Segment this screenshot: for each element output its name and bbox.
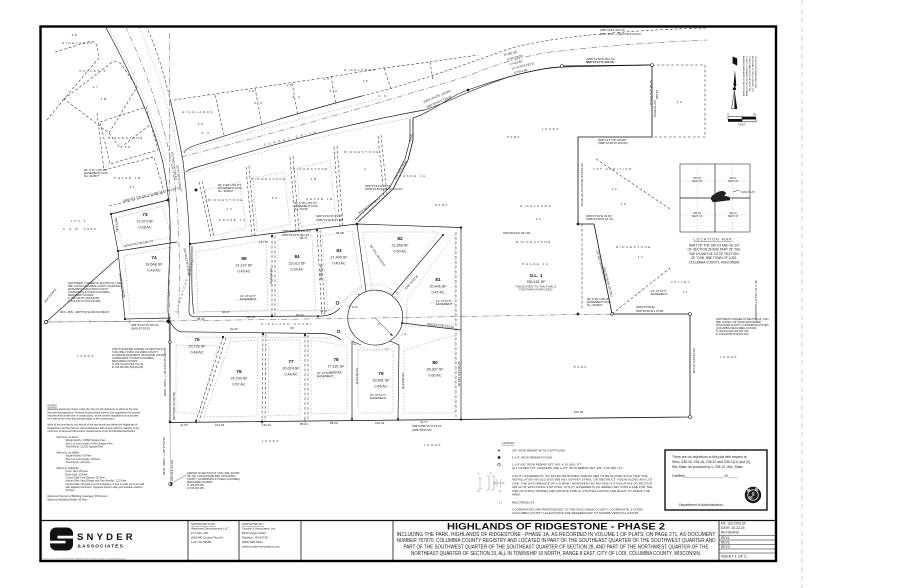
svg-text:REV3: REV3 — [721, 545, 730, 549]
svg-text:(S2°07'55"E): (S2°07'55"E) — [653, 100, 657, 117]
svg-text:SHEET 1 OF 2: SHEET 1 OF 2 — [721, 555, 746, 559]
svg-text:(N89°27'09"E): (N89°27'09"E) — [636, 305, 655, 309]
svg-text:Madison, WI 53718: Madison, WI 53718 — [242, 536, 268, 540]
svg-text:45.97: 45.97 — [320, 309, 328, 313]
svg-text:INCLUDING THE PARK, HIGHLANDS: INCLUDING THE PARK, HIGHLANDS OF RIDGEST… — [397, 532, 716, 538]
svg-text:&ASSOCIATES: &ASSOCIATES — [78, 544, 124, 550]
svg-text:HIGHLANDS: HIGHLANDS — [344, 68, 376, 72]
svg-text:W10440 County Road K: W10440 County Road K — [191, 536, 223, 540]
svg-text:41.97': 41.97' — [180, 423, 189, 427]
svg-text:NORTHEAST QUARTER OF SECTION 3: NORTHEAST QUARTER OF SECTION 33, ALL IN … — [411, 551, 701, 557]
svg-text:EASEMENT: EASEMENT — [651, 292, 668, 296]
svg-text:No. 953007: No. 953007 — [218, 189, 234, 193]
svg-text:There are no objections to thi: There are no objections to this plat wit… — [672, 455, 747, 459]
svg-text:Certified____________________,: Certified____________________, 20_____ — [672, 474, 738, 478]
svg-text:Lodi, WI 53555: Lodi, WI 53555 — [191, 540, 212, 544]
svg-text:minimum lot area and dimension: minimum lot area and dimension requireme… — [48, 429, 136, 433]
svg-text:PARK: PARK — [507, 135, 521, 139]
svg-text:COUNTY COORDINATE SYSTEM (COLU: COUNTY COORDINATE SYSTEM (COLUMBIA — [745, 56, 748, 97]
svg-text:0.60 AC: 0.60 AC — [428, 374, 441, 378]
svg-text:REV1: REV1 — [721, 536, 730, 540]
svg-text:EASEMENT: EASEMENT — [317, 374, 334, 378]
svg-text:RIDGESTONE: RIDGESTONE — [616, 245, 652, 249]
svg-text:13: 13 — [227, 207, 234, 211]
svg-text:COUNTY) NAD-83(2011), IN WHICH: COUNTY) NAD-83(2011), IN WHICH THE — [748, 56, 751, 92]
svg-text:0.6: 0.6 — [255, 101, 264, 105]
svg-text:2B: 2B — [311, 177, 318, 181]
svg-text:30' X 30' UTILITY EASEMENT: 30' X 30' UTILITY EASEMENT — [754, 280, 758, 321]
svg-text:83: 83 — [336, 248, 342, 253]
svg-text:No. 79736: No. 79736 — [294, 207, 308, 211]
svg-text:0.28 AC: 0.28 AC — [138, 226, 151, 230]
svg-text:LOT 1: LOT 1 — [71, 219, 87, 223]
svg-text:25: 25 — [287, 83, 294, 87]
svg-text:73: 73 — [142, 212, 148, 217]
svg-text:MON., MON., (N89°57'03"E 2966.: MON., MON., (N89°57'03"E 2966.06) 2966.0… — [60, 311, 110, 314]
svg-text:HIGHLANDS OF RIDGESTONE - PHAS: HIGHLANDS OF RIDGESTONE - PHASE 2 — [447, 521, 665, 532]
svg-text:82: 82 — [397, 236, 403, 241]
svg-text:DATE: 10-22-24: DATE: 10-22-24 — [721, 526, 745, 530]
svg-text:E: 518,033.833 (518,034.733): E: 518,033.833 (518,034.733) — [716, 333, 749, 336]
svg-text:RIDGESTONE: RIDGESTONE — [108, 136, 144, 140]
svg-text:FOR PARK PURPOSES": FOR PARK PURPOSES" — [519, 288, 553, 292]
svg-text:O.L. 1: O.L. 1 — [529, 273, 542, 278]
svg-text:161.18: 161.18 — [215, 423, 225, 427]
svg-text:MON., MON., + N88°12'48"E 204: MON., MON., + N88°12'48"E 2044.62' — [600, 33, 642, 36]
svg-text:20,446 SF: 20,446 SF — [429, 285, 447, 289]
svg-text:EASEMENT: EASEMENT — [436, 302, 453, 306]
svg-text:HIGHLANDS: HIGHLANDS — [62, 41, 94, 45]
svg-text:74.77: 74.77 — [420, 420, 428, 424]
svg-text:Two-Family: 110 Feet: Two-Family: 110 Feet — [66, 460, 91, 464]
svg-text:(COLUMBIA COUNTY) ELEVATIONS A: (COLUMBIA COUNTY) ELEVATIONS ARE REFEREN… — [512, 511, 639, 515]
svg-text:(N0°25'50"W 230.58): (N0°25'50"W 230.58) — [172, 392, 176, 420]
svg-text:SW 1/4: SW 1/4 — [693, 178, 701, 180]
svg-text:98.45: 98.45 — [197, 317, 205, 321]
svg-text:HIGHLANDS: HIGHLANDS — [520, 204, 552, 208]
svg-text:147.97: 147.97 — [259, 240, 269, 244]
svg-text:THIS PLAT: THIS PLAT — [740, 190, 755, 194]
svg-text:(N88°12'48"E 33.47): (N88°12'48"E 33.47) — [586, 217, 613, 221]
svg-text:(N89°57'03"E): (N89°57'03"E) — [131, 327, 150, 331]
svg-text:20,726 SF: 20,726 SF — [188, 345, 206, 349]
svg-text:96.45: 96.45 — [336, 231, 344, 235]
svg-text:Secs. 236.15, 236.16, 236.20 a: Secs. 236.15, 236.16, 236.20 and 236.21(… — [672, 460, 751, 464]
svg-text:0.34 AC: 0.34 AC — [290, 268, 303, 272]
svg-text:SECT. 33: SECT. 33 — [692, 216, 702, 218]
svg-text:S0°20'04"E 186.38: S0°20'04"E 186.38 — [457, 361, 461, 387]
svg-text:(N88°12'48"E 33.47) (32.27): (N88°12'48"E 33.47) (32.27) — [365, 187, 403, 191]
svg-text:NORTH LINE OF THE SOUTHWEST QT: NORTH LINE OF THE SOUTHWEST QTR — [751, 56, 753, 93]
svg-text:26,307 SF: 26,307 SF — [426, 368, 444, 372]
svg-text:4B: 4B — [101, 97, 108, 101]
svg-text:C.S.M. 5889: C.S.M. 5889 — [63, 227, 97, 231]
svg-text:COLUMBIA COUNTY, WISCONSIN: COLUMBIA COUNTY, WISCONSIN — [689, 260, 740, 264]
svg-text:21,956 SF: 21,956 SF — [391, 244, 409, 248]
svg-text:56: 56 — [125, 145, 132, 149]
svg-text:with adjacent structure. Oppos: with adjacent structure. Opposite interi… — [66, 485, 144, 489]
svg-text:MON., MON., + N0°47'50"W: MON., MON., + N0°47'50"W — [162, 437, 166, 475]
svg-text:0.48 AC: 0.48 AC — [190, 351, 203, 355]
svg-text:140.00: 140.00 — [246, 315, 256, 319]
svg-text:116.12: 116.12 — [262, 423, 271, 427]
svg-text:Wis Stats. as provided by s. 2: Wis Stats. as provided by s. 236.12, Wis… — [672, 465, 743, 469]
svg-text:46.07: 46.07 — [222, 310, 230, 314]
svg-text:18,648 SF: 18,648 SF — [145, 263, 163, 267]
svg-text:5010 Voges Road: 5010 Voges Road — [242, 531, 266, 535]
svg-text:S0°20'04"W: S0°20'04"W — [401, 373, 405, 389]
svg-text:LEGEND: LEGEND — [502, 441, 515, 445]
svg-text:19,691 SF: 19,691 SF — [372, 379, 390, 383]
svg-text:RECORDED AS: RECORDED AS — [512, 501, 534, 505]
svg-text:24,700 SF: 24,700 SF — [230, 377, 248, 381]
svg-text:RIDGESTONE: RIDGESTONE — [516, 240, 552, 244]
svg-text:24: 24 — [324, 77, 331, 81]
svg-text:10 Feet: 10 Feet — [66, 488, 75, 492]
svg-text:(608) 838-0444: (608) 838-0444 — [242, 540, 263, 544]
svg-text:LANDS: LANDS — [720, 355, 738, 359]
svg-text:REVISIONS: REVISIONS — [721, 531, 740, 535]
svg-text:HIGHLAND COURT: HIGHLAND COURT — [261, 322, 314, 326]
svg-text:96.77: 96.77 — [300, 236, 308, 240]
svg-text:VALLEY: VALLEY — [671, 280, 692, 284]
svg-text:N89°26'36"E 179.96': N89°26'36"E 179.96' — [636, 309, 664, 313]
svg-text:22: 22 — [612, 187, 619, 191]
svg-text:OUTLOT 4: OUTLOT 4 — [79, 69, 106, 73]
svg-text:NE 1/4: NE 1/4 — [729, 213, 737, 215]
svg-text:12,074 SF: 12,074 SF — [136, 220, 154, 224]
svg-text:N89°06'10"E 227.92': N89°06'10"E 227.92' — [503, 231, 531, 235]
svg-text:PARK: PARK — [574, 365, 588, 369]
svg-text:15,013 SF: 15,013 SF — [288, 262, 306, 266]
svg-text:80: 80 — [432, 360, 438, 365]
svg-text:Maximum Building Height: 45 Fe: Maximum Building Height: 45 Feet — [48, 497, 88, 501]
svg-text:E: 515,409.345 (515,410.05): E: 515,409.345 (515,410.05) — [112, 366, 143, 369]
svg-text:3/4" IRON REBAR WITH CAP FOUND: 3/4" IRON REBAR WITH CAP FOUND — [512, 449, 565, 453]
svg-text:PHASE 1A: PHASE 1A — [522, 262, 549, 266]
svg-text:SECT. 28: SECT. 28 — [728, 181, 738, 183]
svg-text:SNYDER: SNYDER — [77, 532, 136, 543]
svg-text:No. 953007: No. 953007 — [587, 303, 603, 307]
svg-text:85.00: 85.00 — [300, 422, 308, 426]
svg-text:1ST ADDITION: 1ST ADDITION — [593, 167, 633, 171]
svg-text:( ): ( ) — [499, 501, 502, 505]
svg-text:(S89°39'54"W): (S89°39'54"W) — [412, 428, 432, 432]
svg-text:4B: 4B — [72, 33, 79, 37]
svg-text:SURVEYED FOR:: SURVEYED FOR: — [191, 522, 216, 526]
svg-text:SURVEYED BY:: SURVEYED BY: — [242, 522, 264, 526]
svg-text:74: 74 — [151, 255, 157, 260]
svg-text:22.990: 22.990 — [655, 90, 659, 100]
svg-text:0.50 AC: 0.50 AC — [393, 250, 406, 254]
svg-text:(S89°45'10"E 461.97): (S89°45'10"E 461.97) — [282, 229, 311, 233]
svg-text:0.43 AC: 0.43 AC — [147, 269, 160, 273]
svg-text:0.6: 0.6 — [330, 89, 339, 93]
svg-text:60: 60 — [753, 113, 757, 117]
svg-text:No. 963577: No. 963577 — [84, 174, 100, 178]
svg-text:AREA.: AREA. — [512, 493, 521, 497]
svg-text:21: 21 — [683, 290, 690, 294]
svg-text:SE 1/4: SE 1/4 — [730, 178, 738, 180]
svg-text:0.47 AC: 0.47 AC — [431, 291, 444, 295]
svg-text:S2°08'32"E 183.32: S2°08'32"E 183.32 — [649, 80, 653, 106]
svg-text:0.46 AC: 0.46 AC — [284, 373, 297, 377]
svg-text:RIDGESTONE: RIDGESTONE — [251, 177, 287, 181]
svg-text:E: 515,418.108: E: 515,418.108 — [187, 487, 204, 490]
svg-text:REV2: REV2 — [721, 541, 730, 545]
svg-text:RIDGESTONE: RIDGESTONE — [293, 167, 329, 171]
svg-text:Westview Development LLC: Westview Development LLC — [191, 527, 229, 531]
svg-text:NOTES: NOTES — [48, 404, 57, 408]
svg-text:C8: C8 — [290, 326, 294, 330]
svg-text:78: 78 — [333, 357, 339, 362]
svg-text:RIDGESTONE: RIDGESTONE — [344, 150, 380, 154]
svg-text:NW 1/4: NW 1/4 — [693, 213, 701, 215]
svg-text:NUMBER 757970, COLUMBIA COUNTY: NUMBER 757970, COLUMBIA COUNTY REGISTRY … — [397, 538, 716, 544]
svg-text:26: 26 — [249, 89, 256, 93]
svg-text:ALL OTHER LOT CORNERS ARE A 3/: ALL OTHER LOT CORNERS ARE A 3/4" IRON RE… — [512, 466, 623, 470]
svg-text:17,181 SF: 17,181 SF — [327, 365, 345, 369]
svg-text:2: 2 — [364, 167, 367, 171]
svg-text:16: 16 — [621, 202, 628, 206]
svg-text:0.40 AC: 0.40 AC — [332, 262, 345, 266]
svg-text:1-1/4" IRON REBAR FOUND: 1-1/4" IRON REBAR FOUND — [512, 456, 552, 460]
svg-text:0.45 AC: 0.45 AC — [374, 385, 387, 389]
svg-text:LANDS: LANDS — [262, 439, 280, 443]
svg-text:N88°13'17"E 204.60': N88°13'17"E 204.60' — [586, 60, 615, 64]
svg-text:RIDGESTONE: RIDGESTONE — [208, 198, 244, 202]
svg-text:84: 84 — [294, 254, 300, 259]
svg-text:HIGHLANDS: HIGHLANDS — [182, 110, 214, 114]
svg-text:(S89°13'12"E 33.06): (S89°13'12"E 33.06) — [316, 218, 343, 222]
svg-text:17,409 SF: 17,409 SF — [330, 256, 348, 260]
svg-text:USE OF PUBLIC BODIES AND PRIVA: USE OF PUBLIC BODIES AND PRIVATE PUBLIC … — [512, 489, 650, 493]
svg-text:Department of Administration: Department of Administration — [679, 503, 723, 507]
svg-text:90.00: 90.00 — [296, 313, 304, 317]
svg-text:0.49 AC: 0.49 AC — [237, 270, 250, 274]
svg-text:0.57 AC: 0.57 AC — [232, 383, 245, 387]
svg-text:(N88°12'48"E 2044.72): (N88°12'48"E 2044.72) — [600, 29, 625, 32]
svg-text:81.03: 81.03 — [230, 327, 238, 331]
svg-text:Two-Family: 13,200 Square Feet: Two-Family: 13,200 Square Feet — [66, 445, 104, 449]
svg-text:23: 23 — [272, 196, 279, 200]
svg-text:27: 27 — [93, 85, 100, 89]
svg-text:LANDS: LANDS — [77, 354, 95, 358]
svg-text:15: 15 — [363, 79, 370, 83]
svg-text:44: 44 — [638, 255, 645, 259]
svg-text:(S88°12'46"W 165.00): (S88°12'46"W 165.00) — [598, 141, 628, 145]
svg-text:BEARINGS ARE BASED ON THE WISC: BEARINGS ARE BASED ON THE WISCONSIN — [742, 56, 745, 97]
svg-text:EASEMENT: EASEMENT — [370, 396, 387, 400]
svg-text:LANDS: LANDS — [424, 443, 442, 447]
svg-text:time will be the ones that act: time will be the ones that actually appl… — [48, 417, 116, 421]
svg-text:88.00: 88.00 — [330, 421, 338, 425]
svg-text:0.6: 0.6 — [379, 94, 388, 98]
svg-text:4A: 4A — [677, 100, 684, 104]
svg-text:20,024 SF: 20,024 SF — [282, 367, 300, 371]
svg-text:S0°25'50"W: S0°25'50"W — [269, 268, 273, 284]
svg-text:85: 85 — [241, 256, 247, 261]
svg-text:EASEMENT: EASEMENT — [240, 297, 257, 301]
svg-text:OF SECTION 33 BEARS N88°12'48": OF SECTION 33 BEARS N88°12'48"E — [754, 56, 757, 89]
svg-text:160.44: 160.44 — [375, 421, 385, 425]
svg-text:0.6: 0.6 — [293, 95, 302, 99]
svg-text:79: 79 — [378, 371, 384, 376]
svg-text:PHASE 1B: PHASE 1B — [114, 176, 141, 180]
svg-text:S0°33'24"E 103.00: S0°33'24"E 103.00 — [692, 348, 696, 374]
svg-text:0.6: 0.6 — [202, 131, 211, 135]
svg-text:C12: C12 — [352, 305, 358, 309]
svg-text:PHASE 1C: PHASE 1C — [219, 218, 247, 222]
svg-text:FEET: FEET — [738, 123, 746, 127]
svg-text:75: 75 — [194, 337, 200, 342]
svg-text:81: 81 — [435, 277, 441, 282]
svg-text:E: 513,343.473 (513,342.899): E: 513,343.473 (513,342.899) — [68, 300, 101, 303]
svg-text:S0°16'43"E 86.69 (S0°18' 86.62: S0°16'43"E 86.69 (S0°18' 86.62) — [580, 163, 584, 206]
svg-text:SECT. 28: SECT. 28 — [692, 181, 702, 183]
svg-text:45: 45 — [198, 122, 205, 126]
svg-text:22: 22 — [536, 217, 543, 221]
svg-text:S0°20'04"W: S0°20'04"W — [355, 368, 359, 384]
svg-text:(S0°32'E 61.03): (S0°32'E 61.03) — [170, 460, 174, 481]
svg-text:77: 77 — [288, 359, 294, 364]
svg-text:PART OF THE SOUTHWEST QUARTER: PART OF THE SOUTHWEST QUARTER OF THE SOU… — [404, 545, 710, 551]
svg-text:515.96': 515.96' — [574, 410, 584, 414]
svg-text:S0°46'50"W: S0°46'50"W — [319, 264, 323, 280]
svg-text:www.snyder-associates.com: www.snyder-associates.com — [242, 545, 280, 549]
svg-text:P.O. Box 167: P.O. Box 167 — [191, 531, 209, 535]
svg-text:FN: 122.0703.30: FN: 122.0703.30 — [721, 522, 746, 526]
svg-text:21,147 SF: 21,147 SF — [235, 264, 253, 268]
svg-text:LANDS: LANDS — [542, 127, 560, 131]
svg-text:Snyder & Associates, Inc.: Snyder & Associates, Inc. — [242, 527, 276, 531]
svg-text:76: 76 — [236, 369, 242, 374]
svg-text:SECT. 33: SECT. 33 — [728, 216, 738, 218]
svg-text:51: 51 — [130, 185, 137, 189]
svg-text:P:\Projects\122.0703.30_RIDGES: P:\Projects\122.0703.30_RIDGESTONE_PHASE… — [42, 558, 126, 561]
svg-text:LOCATION MAP: LOCATION MAP — [694, 238, 733, 242]
svg-text:PARK: PARK — [435, 203, 449, 207]
svg-text:330,181 SF: 330,181 SF — [526, 280, 546, 284]
svg-text:PHASE 1A: PHASE 1A — [399, 174, 426, 178]
